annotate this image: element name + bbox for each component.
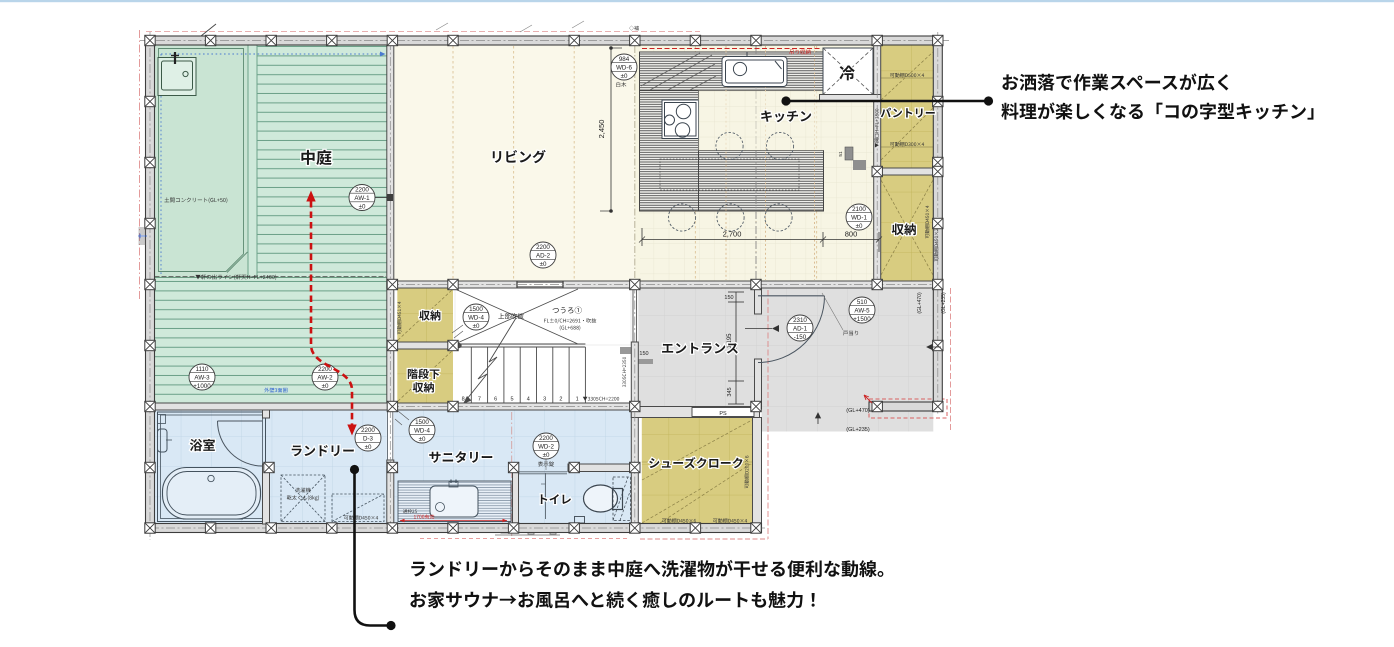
svg-text:7: 7 [478,397,481,403]
svg-text:(GL+688): (GL+688) [559,325,581,332]
svg-text:▼3305CH=2200: ▼3305CH=2200 [583,396,620,403]
svg-text:345: 345 [727,387,733,396]
svg-text:▼軒の出ライン(軒天H=FL+2400): ▼軒の出ライン(軒天H=FL+2400) [195,273,277,281]
svg-text:2200: 2200 [536,244,550,251]
svg-text:3: 3 [543,397,546,403]
svg-text:◇補: ◇補 [629,25,639,32]
svg-text:2200: 2200 [318,366,332,373]
svg-text:5: 5 [510,397,513,403]
svg-text:可動棚D451×4: 可動棚D451×4 [396,301,403,334]
svg-text:150: 150 [639,351,648,357]
svg-text:可動棚D450×6: 可動棚D450×6 [662,518,697,525]
svg-text:2100: 2100 [852,206,866,213]
svg-text:±0: ±0 [621,73,628,80]
svg-text:AW-2: AW-2 [317,374,333,381]
svg-text:可動棚D450×4: 可動棚D450×4 [924,205,931,238]
svg-text:可動棚D500×4: 可動棚D500×4 [890,72,925,79]
svg-text:2200: 2200 [361,427,375,434]
svg-text:1: 1 [576,397,579,403]
svg-text:冷: 冷 [839,60,855,84]
svg-text:3305CH=2350: 3305CH=2350 [621,356,628,387]
svg-text:(GL+470): (GL+470) [846,408,870,414]
svg-text:収納: 収納 [891,219,916,238]
svg-text:ランドリー: ランドリー [290,441,355,460]
svg-text:PS: PS [719,411,727,417]
svg-text:シューズクローク: シューズクローク [648,455,743,472]
svg-text:戸当り: 戸当り [843,329,860,337]
svg-text:可動棚D200×6: 可動棚D200×6 [744,455,751,488]
svg-text:-150: -150 [794,334,807,341]
svg-text:通枠25: 通枠25 [403,509,418,515]
svg-text:±0: ±0 [322,383,329,390]
svg-text:WD-1: WD-1 [851,214,867,221]
svg-text:WD-4: WD-4 [468,314,484,321]
svg-text:WD-4: WD-4 [414,427,430,434]
svg-text:1500: 1500 [415,419,429,426]
svg-text:エントランス: エントランス [661,338,739,357]
svg-text:(GL+470): (GL+470) [917,292,923,314]
svg-text:サニタリー: サニタリー [428,447,493,466]
svg-text:収納: 収納 [413,380,435,396]
svg-text:パントリー: パントリー [880,105,936,121]
svg-text:料理が楽しくなる「コの字型キッチン」: 料理が楽しくなる「コの字型キッチン」 [1001,98,1325,124]
svg-text:150: 150 [724,295,733,301]
svg-text:可動棚D300×4: 可動棚D300×4 [890,141,925,148]
svg-text:2,450: 2,450 [597,120,606,139]
svg-text:AD-2: AD-2 [536,252,551,259]
svg-text:可動棚D450×2: 可動棚D450×2 [933,228,940,261]
svg-text:±0: ±0 [856,223,863,230]
svg-text:浴室: 浴室 [189,435,215,454]
svg-text:リビング: リビング [490,147,546,167]
svg-text:2310: 2310 [793,317,807,324]
svg-text:土間コンクリート(GL+50): 土間コンクリート(GL+50) [164,196,228,204]
svg-text:2200: 2200 [355,186,369,193]
svg-text:AW-3: AW-3 [194,374,210,381]
svg-text:1110: 1110 [196,366,209,373]
svg-text:±0: ±0 [359,204,366,211]
svg-text:AD-1: AD-1 [793,325,808,332]
svg-text:±0: ±0 [419,436,426,443]
svg-text:51: 51 [838,151,844,157]
svg-text:(GL+235): (GL+235) [941,292,947,314]
svg-text:お洒落で作業スペースが広く: お洒落で作業スペースが広く [1001,69,1233,95]
svg-text:D-3: D-3 [363,435,374,442]
svg-text:外壁3面囲: 外壁3面囲 [264,387,288,394]
svg-text:可動棚D450×4: 可動棚D450×4 [713,518,748,525]
svg-text:(GL+235): (GL+235) [846,427,870,433]
svg-text:可動棚D450×4: 可動棚D450×4 [344,515,379,522]
svg-text:つうろ①: つうろ① [552,305,582,316]
svg-text:2: 2 [559,397,562,403]
svg-text:乾太くん(8kg): 乾太くん(8kg) [287,495,320,502]
svg-text:+1500: +1500 [853,316,871,323]
svg-text:±0: ±0 [543,452,550,459]
svg-text:上部吹抜: 上部吹抜 [498,311,525,321]
svg-text:±0: ±0 [473,323,480,330]
svg-text:白木: 白木 [615,81,627,89]
svg-text:トイレ: トイレ [537,492,572,508]
svg-text:FL±0/CH=2691・吹抜: FL±0/CH=2691・吹抜 [544,318,598,325]
svg-text:ランドリーからそのまま中庭へ洗濯物が干せる便利な動線。: ランドリーからそのまま中庭へ洗濯物が干せる便利な動線。 [409,556,895,582]
svg-text:吊り収納: 吊り収納 [789,48,812,56]
svg-text:中庭: 中庭 [300,145,332,169]
svg-text:2,700: 2,700 [723,230,742,239]
svg-text:AW-5: AW-5 [854,307,870,314]
svg-text:AW-1: AW-1 [354,195,370,202]
svg-text:510: 510 [857,299,868,306]
svg-text:1500: 1500 [469,306,483,313]
svg-text:±0: ±0 [540,261,547,268]
svg-text:984: 984 [619,56,630,63]
svg-text:2200: 2200 [539,435,553,442]
svg-text:WD-2: WD-2 [538,443,554,450]
svg-text:±0: ±0 [365,444,372,451]
svg-text:8: 8 [462,397,465,403]
svg-text:+1000: +1000 [193,383,211,390]
svg-text:洗濯機: 洗濯機 [295,487,311,494]
svg-text:WD-6: WD-6 [616,64,632,71]
svg-text:4: 4 [527,397,530,403]
svg-text:6: 6 [494,397,497,403]
svg-text:収納: 収納 [419,308,441,324]
svg-text:800: 800 [845,230,858,239]
svg-text:お家サウナ→お風呂へと続く癒しのルートも魅力！: お家サウナ→お風呂へと続く癒しのルートも魅力！ [409,587,822,613]
svg-text:キッチン: キッチン [760,106,812,125]
